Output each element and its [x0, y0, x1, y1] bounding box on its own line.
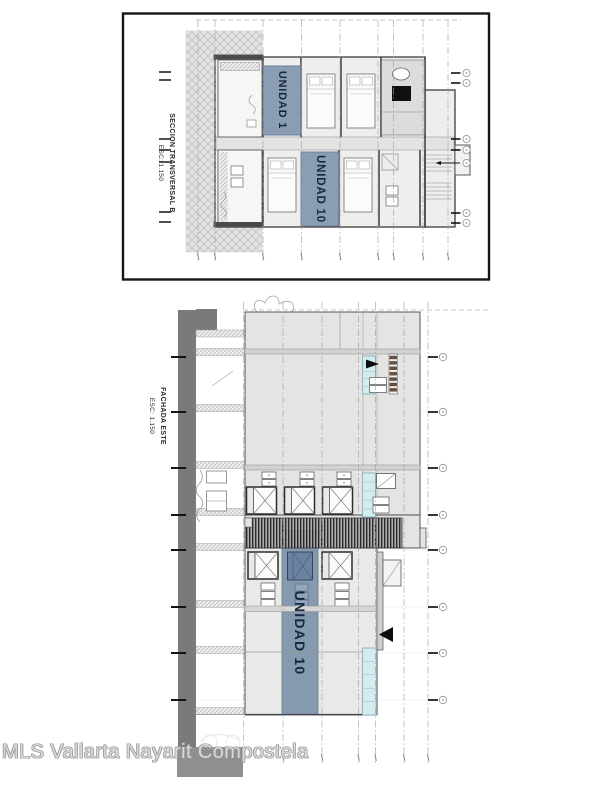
elevation-ground-bar — [171, 309, 243, 777]
glass-panel-lower — [363, 648, 377, 715]
elevation-grid-bubbles — [428, 353, 447, 703]
elevation-left-terrace — [196, 330, 245, 749]
elevation-drawing-group — [171, 296, 490, 777]
drawings-canvas — [0, 0, 612, 792]
unit-10-band-section — [301, 152, 339, 226]
sheet-page: SECCION TRANSVERSAL B ESC: 1.150 UNIDAD … — [0, 0, 612, 792]
watermark: MLS Vallarta Nayarit Compostela — [2, 741, 309, 764]
louver-band — [245, 518, 402, 548]
unit-1-band — [263, 66, 301, 135]
section-drawing-group — [123, 14, 489, 280]
ladder-rungs — [390, 356, 397, 391]
